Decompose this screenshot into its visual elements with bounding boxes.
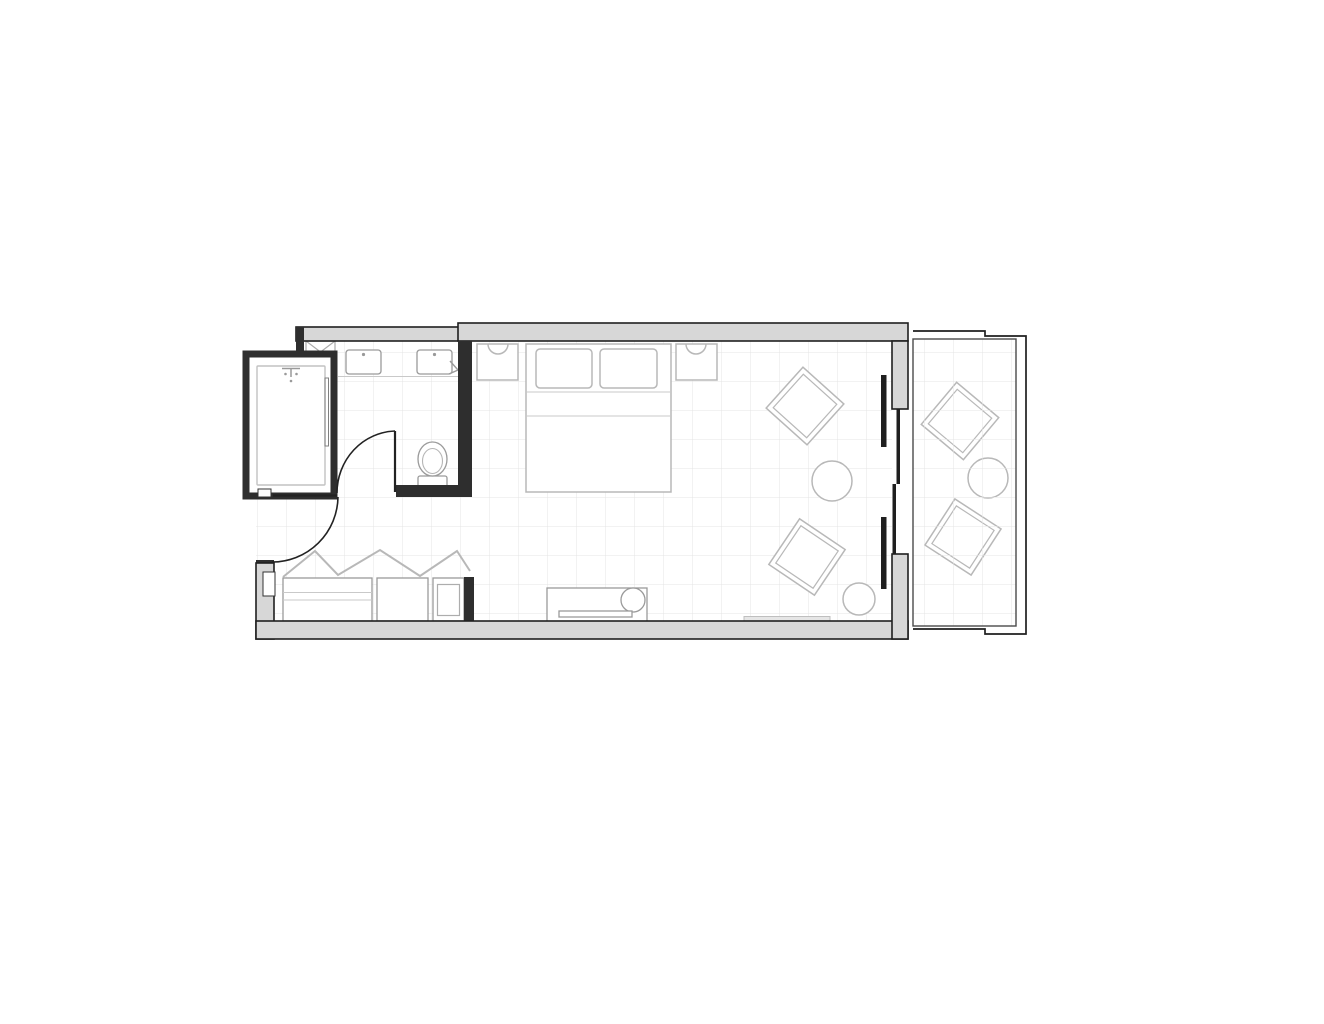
floor-plan-drawing bbox=[0, 0, 1324, 1024]
bathroom-bedroom-partition bbox=[458, 341, 472, 497]
sink-right bbox=[417, 350, 452, 374]
entry-jamb-notch bbox=[263, 572, 275, 596]
console-lamp bbox=[621, 588, 645, 612]
bathtub-shower-enclosure bbox=[246, 354, 334, 497]
balcony-floor bbox=[913, 339, 1016, 626]
bottom-wall bbox=[256, 621, 908, 639]
floor-plan-canvas bbox=[0, 0, 1324, 1024]
top-wall-bedroom bbox=[458, 323, 908, 341]
console-tray bbox=[559, 611, 632, 617]
sink-left bbox=[346, 350, 381, 374]
closet-open-shelf bbox=[377, 578, 428, 621]
top-wall-bathroom bbox=[296, 327, 462, 341]
round-table bbox=[812, 461, 852, 501]
right-wall-top bbox=[892, 341, 908, 409]
fixed-glass-upper bbox=[897, 409, 901, 484]
nightstand-right bbox=[676, 344, 717, 380]
bathroom-south-wall bbox=[396, 485, 472, 497]
toilet bbox=[418, 442, 447, 489]
nightstand-left bbox=[477, 344, 518, 380]
right-wall-bottom bbox=[892, 554, 908, 639]
closet-east-stub bbox=[464, 577, 474, 622]
sliding-door-leaf-lower bbox=[881, 517, 887, 589]
fixed-glass-lower bbox=[893, 484, 897, 554]
balcony bbox=[913, 331, 1026, 634]
double-bed bbox=[526, 344, 671, 492]
media-console bbox=[547, 588, 647, 622]
round-stool bbox=[843, 583, 875, 615]
sliding-door-leaf-upper bbox=[881, 375, 887, 447]
minibar-cabinet bbox=[433, 578, 464, 621]
pillow-left bbox=[536, 349, 592, 388]
pillow-right bbox=[600, 349, 657, 388]
tub-wall-notch bbox=[258, 489, 271, 497]
